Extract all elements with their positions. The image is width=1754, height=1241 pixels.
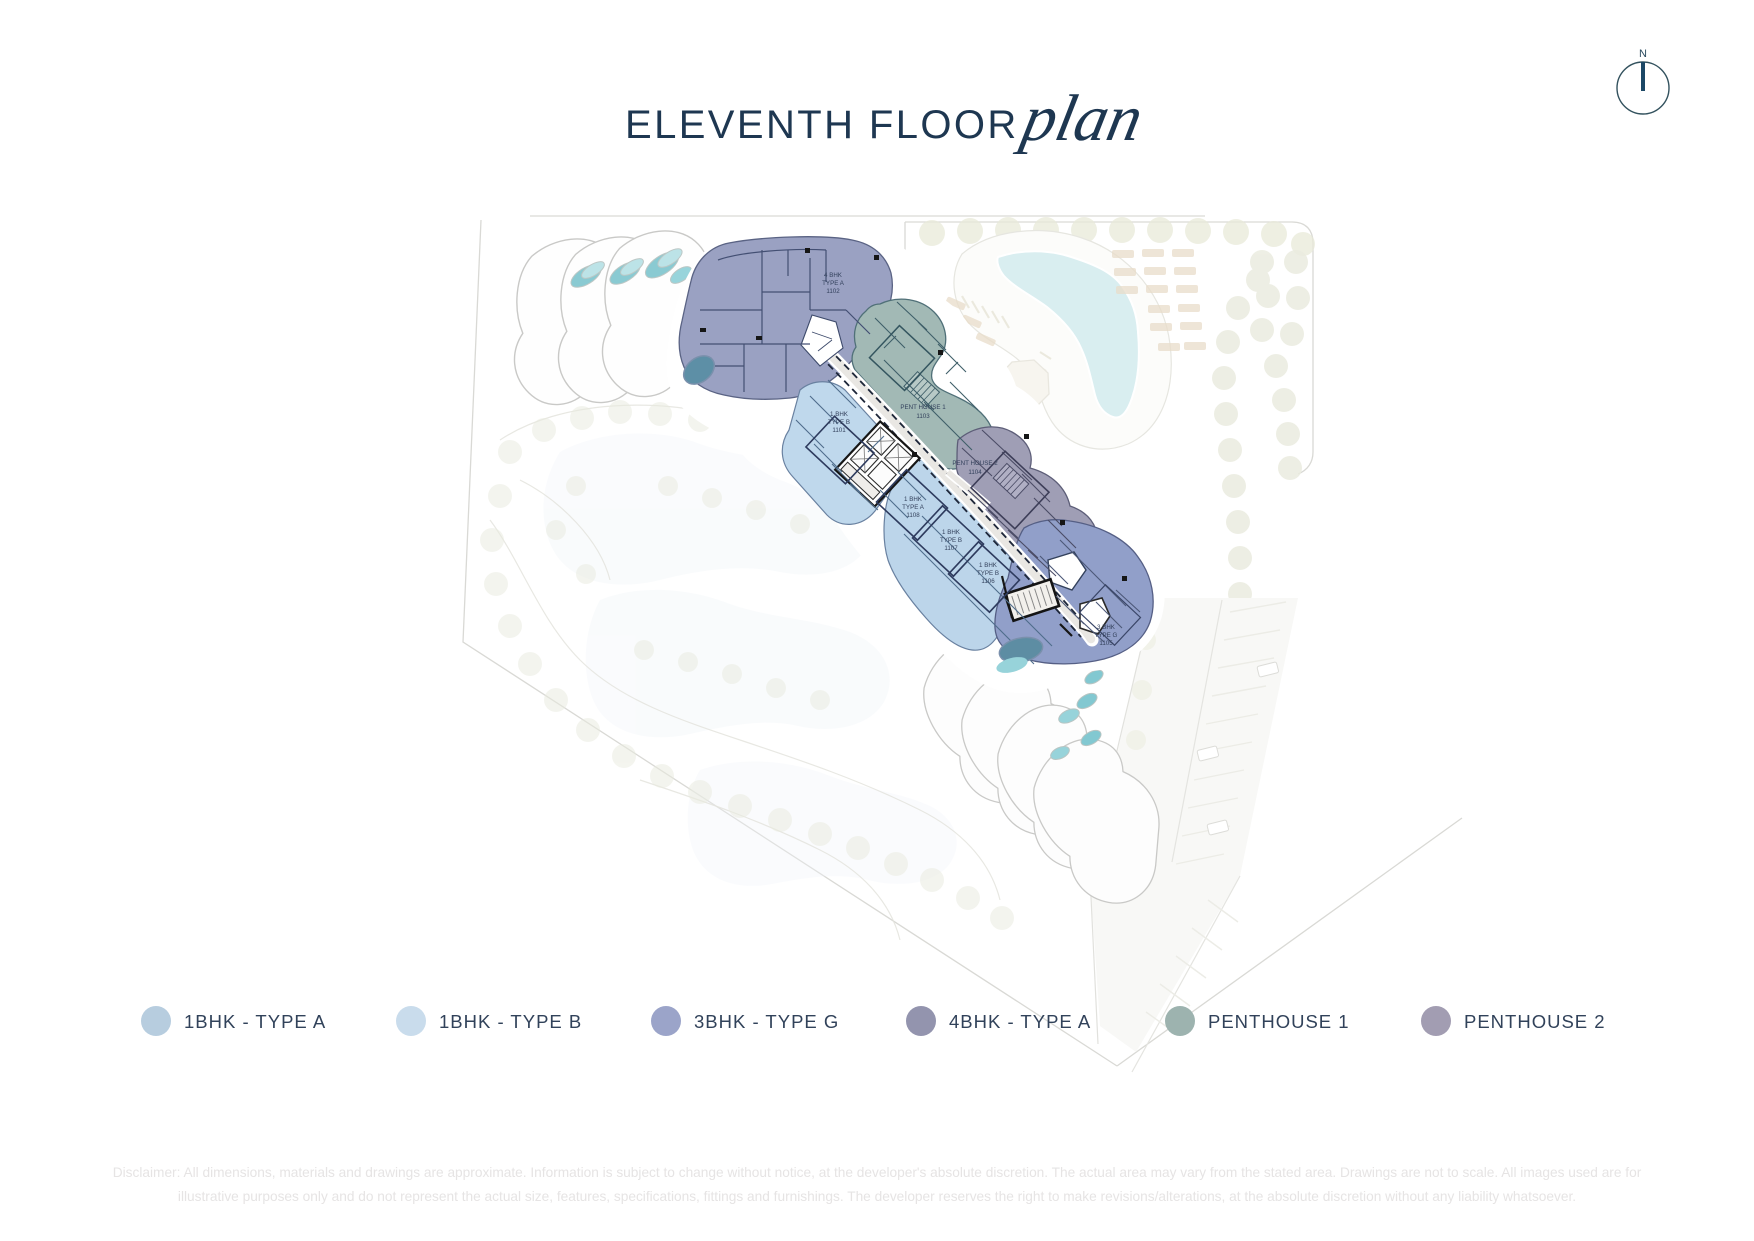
svg-text:TYPE A: TYPE A <box>822 280 845 287</box>
svg-text:1 BHK: 1 BHK <box>942 529 961 536</box>
svg-text:1 BHK: 1 BHK <box>830 411 849 418</box>
svg-text:4 BHK: 4 BHK <box>824 272 843 279</box>
svg-text:PENT HOUSE 1: PENT HOUSE 1 <box>900 404 946 411</box>
svg-text:3 BHK: 3 BHK <box>1097 624 1116 631</box>
svg-text:1 BHK: 1 BHK <box>904 496 923 503</box>
svg-text:1105: 1105 <box>1099 640 1113 647</box>
svg-text:TYPE B: TYPE B <box>940 537 962 544</box>
svg-text:1104: 1104 <box>968 469 982 476</box>
svg-text:1102: 1102 <box>826 288 840 295</box>
svg-text:1106: 1106 <box>981 578 995 585</box>
svg-text:1 BHK: 1 BHK <box>979 562 998 569</box>
svg-text:1108: 1108 <box>906 512 920 519</box>
svg-text:PENT HOUSE 2: PENT HOUSE 2 <box>952 460 998 467</box>
svg-text:TYPE G: TYPE G <box>1095 632 1118 639</box>
svg-text:TYPE A: TYPE A <box>902 504 925 511</box>
svg-text:1101: 1101 <box>832 427 846 434</box>
svg-text:TYPE B: TYPE B <box>828 419 850 426</box>
svg-text:1107: 1107 <box>944 545 958 552</box>
svg-text:1103: 1103 <box>916 413 930 420</box>
svg-text:TYPE B: TYPE B <box>977 570 999 577</box>
